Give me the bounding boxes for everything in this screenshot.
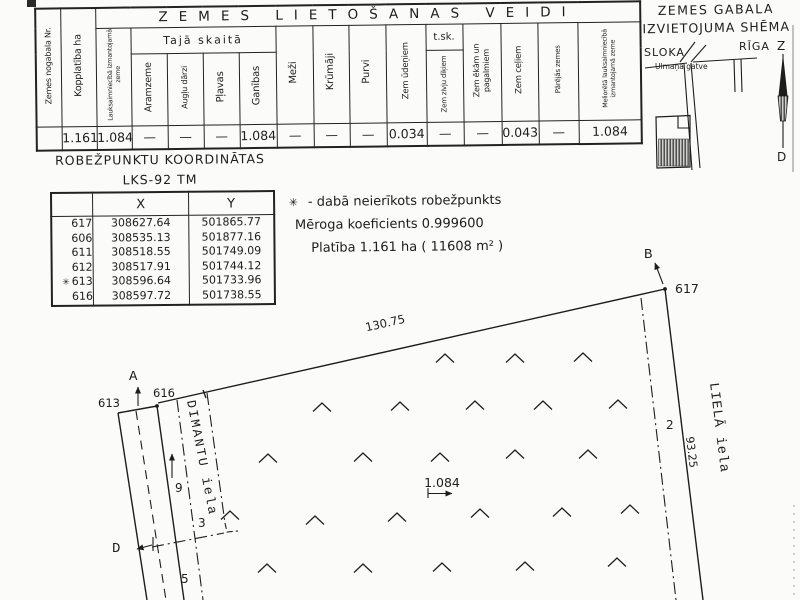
plan-street-lines [136,298,676,600]
schema-title-line2: IZVIETOJUMA SHĒMA [636,19,796,37]
pasture-caret-icon [516,562,534,571]
shrubs-label: Krūmāji [324,53,337,90]
coords-row-x-612: 308517.91 [94,260,189,275]
value-total: 1.161 [62,126,97,150]
pasture-caret-icon [579,450,597,459]
swamps-label: Purvi [361,60,374,84]
col-header-roads: Zem ceļiem [500,23,538,121]
pasture-caret-icon [388,513,406,522]
pasture-caret-icon [431,453,449,462]
group-header-included: Tajā skaitā [130,26,275,54]
street-label-dimantu: DIMANTU iela [183,399,220,517]
legend-star-note: ✳- dabā neierīkots robežpunkts [289,193,503,218]
code-label-9: 9 [175,481,183,495]
dimension-top: 130.75 [364,312,406,335]
coords-row-y-616: 501738.55 [190,288,274,303]
pasture-caret-icon [553,508,571,517]
meadows-label: Pļavas [215,71,228,102]
asterisk-icon: ✳ [289,196,298,209]
pasture-caret-icon [609,400,627,409]
buildings-label: Zem ēkām un pagalmiem [471,24,492,116]
code-label-3: 3 [198,516,206,530]
direction-label-a: A [129,369,138,385]
schema-title: ZEMES GABALA IZVIETOJUMA SHĒMA [636,1,797,37]
value-meadows: — [204,124,240,148]
plan-arrows [137,263,663,551]
value-swamps: — [350,122,387,146]
other-label: Pārējās zemes [553,45,562,93]
col-header-pastures: Ganības [239,52,277,124]
total-area-label: Kopplatība ha [72,34,85,97]
coords-row-y-612: 501744.12 [190,259,274,274]
coords-header-y: Y [189,191,275,215]
col-header-fishponds: Zem zivju dīķiem [426,49,464,121]
col-header-agri: Lauksaimniecībā izmantojamā zeme [95,28,131,126]
col-header-swamps: Purvi [348,24,386,122]
col-header-water: Zem ūdeņiem [385,24,426,122]
value-roads: 0.043 [502,121,539,145]
asterisk-icon: ✳ [62,278,70,288]
col-header-parcel-nr: Zemes nogabala Nr. [35,8,61,126]
compass-north-label: Z [777,39,785,53]
value-water: 0.034 [387,122,427,146]
pasture-caret-icon [436,354,454,363]
pasture-caret-icon [258,564,276,573]
area-label: 1.084 [424,475,460,490]
pasture-caret-icon [621,505,639,514]
pasture-caret-icon [608,558,626,567]
coords-row-pt-606: 606 [52,231,92,246]
coords-row-x-611: 308518.55 [93,245,188,260]
water-label: Zem ūdeņiem [400,43,411,100]
pasture-caret-icon [313,403,331,412]
legend-notes: ✳- dabā neierīkots robežpunkts Mēroga ko… [283,193,504,264]
coords-row-y-617: 501865.77 [189,215,273,230]
coords-table-title: ROBEŽPUNKTU KOORDINĀTAS [48,151,272,168]
value-orchards: — [168,125,204,149]
coords-header-x: X [93,192,189,216]
pasture-caret-icon [354,564,372,573]
col-header-other: Pārējās zemes [537,22,578,120]
pasture-caret-icon [259,454,277,463]
value-other: — [539,120,579,144]
col-header-shrubs: Krūmāji [312,25,349,123]
pasture-caret-icon [574,353,592,362]
pasture-caret-icon [391,402,409,411]
col-header-forests: Meži [275,25,313,123]
schema-city-riga: RĪGA [739,40,770,53]
pastures-label: Ganības [251,66,264,105]
pasture-symbols [221,353,639,573]
fishponds-label: Zem zivju dīķiem [440,55,449,112]
dimension-right: 93.25 [683,436,700,469]
pasture-caret-icon [506,354,524,363]
coords-row-y-606: 501877.16 [189,230,273,245]
pasture-caret-icon [506,450,524,459]
schema-title-line1: ZEMES GABALA [636,1,796,19]
legend-area-note: Platība 1.161 ha ( 11608 m² ) [311,239,503,264]
pasture-caret-icon [354,453,372,462]
legend-scale-note: Mēroga koeficients 0.999600 [295,216,503,241]
land-use-table: Zemes nogabala Nr. Kopplatība ha ZEMES L… [34,0,642,151]
coords-y-values: 501865.77501877.16501749.09501744.125017… [189,215,275,305]
pasture-caret-icon [221,511,239,520]
col-header-orchards: Augļu dārzi [167,53,204,125]
pasture-caret-icon [433,563,451,572]
pasture-caret-icon [471,509,489,518]
coords-row-pt-613: ✳613 [53,275,93,290]
coords-row-x-616: 308597.72 [94,289,189,304]
roads-label: Zem ceļiem [514,46,525,94]
coords-row-pt-611: 611 [52,246,92,261]
code-label-2: 2 [666,418,674,432]
point-label-613: 613 [98,396,120,410]
coords-point-numbers: 617606611612✳613616 [51,216,93,305]
coords-row-x-606: 308535.13 [93,230,188,245]
direction-label-b: B [644,247,652,263]
agri-label: Lauksaimniecībā izmantojamā zeme [105,29,122,121]
coords-row-pt-617: 617 [52,217,92,232]
forests-label: Meži [288,61,301,83]
coords-row-pt-616: 616 [53,290,93,305]
coords-row-x-617: 308627.64 [93,216,188,231]
scanned-land-survey-document: Zemes nogabala Nr. Kopplatība ha ZEMES L… [0,0,800,600]
street-label-liela: LIELĀ iela [705,382,731,474]
compass-north-arrow: Z D [777,39,788,164]
schema-road-label: Ulmaņa gatve [655,62,708,71]
code-label-5: 5 [181,572,189,586]
coords-x-values: 308627.64308535.13308518.55308517.913085… [93,215,190,305]
value-agri: 1.084 [97,126,132,150]
col-header-ameliorated: Meliorētā lauksaimniecībā izmantojamā ze… [577,21,641,120]
coords-row-y-611: 501749.09 [189,244,273,259]
value-fishponds: — [427,121,464,145]
pasture-caret-icon [306,516,324,525]
value-forests: — [277,123,314,147]
ameliorated-label: Meliorētā lauksaimniecībā izmantojamā ze… [601,23,618,115]
coords-row-x-613: 308596.64 [94,274,189,289]
coords-table: X Y 617606611612✳613616 308627.64308535.… [50,190,276,307]
value-buildings: — [464,121,502,145]
arable-label: Aramzeme [143,62,155,112]
schema-city-sloka: SLOKA [644,46,685,59]
col-header-buildings: Zem ēkām un pagalmiem [462,23,501,121]
value-arable: — [132,125,168,149]
group-header-tsk: t.sk. [425,23,462,49]
pasture-caret-icon [466,401,484,410]
value-pastures: 1.084 [240,124,277,148]
pasture-caret-icon [534,401,552,410]
value-shrubs: — [314,123,350,147]
plan-boundary-lines [118,287,703,600]
orchards-label: Augļu dārzi [180,65,191,108]
coords-row-y-613: 501733.96 [190,273,274,288]
col-header-meadows: Pļavas [203,52,240,124]
direction-label-d: D [112,541,120,557]
value-parcel-nr [37,126,62,150]
parcel-nr-label: Zemes nogabala Nr. [43,27,54,104]
col-header-arable: Aramzeme [131,53,168,125]
point-label-617: 617 [675,281,699,296]
schema-parcel-block [656,116,690,169]
point-label-616: 616 [153,386,175,400]
coords-header-empty [51,193,93,217]
col-header-total-area: Kopplatība ha [60,8,96,126]
compass-south-label: D [777,150,786,164]
coords-table-subtitle: LKS-92 TM [48,171,272,188]
coords-row-pt-612: 612 [53,260,93,275]
value-ameliorated: 1.084 [579,119,642,144]
